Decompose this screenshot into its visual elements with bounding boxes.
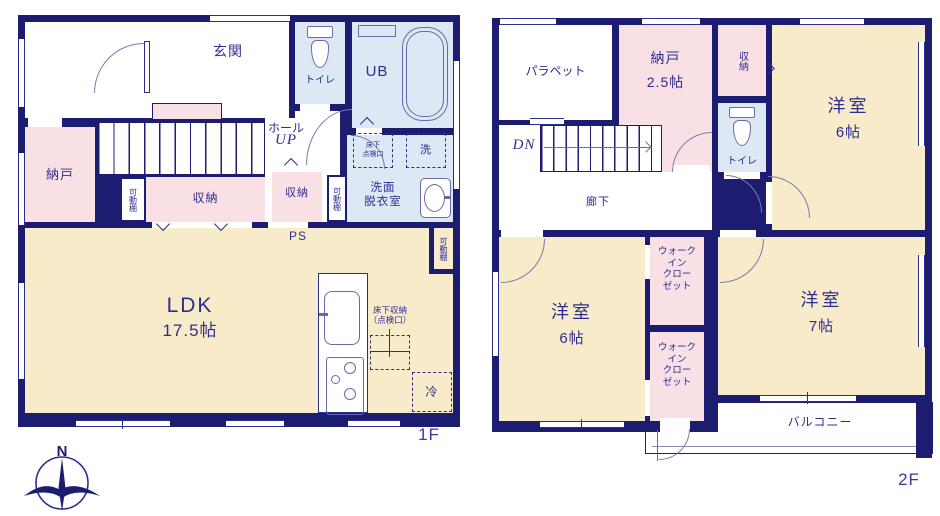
shelf-kadodana-3: 可動棚 [429,228,453,274]
youshitsu-sw-size-label: 6帖 [499,330,645,348]
washbasin-faucet-icon [444,196,451,199]
toilet-tank-icon [307,26,333,38]
window [800,18,864,25]
stairs-dn-line [544,147,652,148]
shoe-cabinet [152,103,222,120]
shelf-kadodana-2-label: 可動棚 [332,187,343,211]
stove-burner-icon [344,362,356,374]
ldk-size-label: 17.5帖 [90,321,290,342]
closet-2-label: 収納 [272,187,322,200]
compass-n-glyph: N [57,443,68,460]
stairs-dn-label: DN [506,136,542,154]
toilet-1f-label: トイレ [295,75,345,87]
closet-1-label: 収納 [146,191,265,206]
washroom-label: 洗面 脱衣室 [352,181,414,209]
stove-burner-icon [344,388,356,400]
underfloor-storage-label: 床下収納 （点検口） [348,305,432,326]
underfloor-access-label: 床下 点検口 [363,142,384,159]
wic-north-label: ウォーク イン クロー ゼット [650,246,704,292]
window-mullion [807,392,808,404]
door-gap-nando [28,118,62,127]
bathtub-inner-icon [406,31,444,117]
corridor-label: 廊下 [568,196,628,209]
fridge-box: 冷 [412,372,452,412]
compass-north-icon: N [20,438,104,514]
stove-burner-icon [331,375,340,384]
closet-2f-label: 収納 [735,51,750,71]
kitchen-faucet-icon [319,313,328,316]
window [348,420,400,427]
window [492,272,499,356]
fridge-label: 冷 [425,385,438,400]
stairs-up [97,122,265,175]
floor-plan-canvas: バルコニー UP 可動棚 可動棚 可動棚 [0,0,940,516]
youshitsu-e-label: 洋室 [718,290,925,312]
floor-tag-2f: 2F [886,470,932,491]
window [18,39,25,107]
door-arc-balcony [659,429,690,460]
shelf-kadodana-1: 可動棚 [120,177,146,222]
window-mullion [581,419,582,430]
plan-1f: UP 可動棚 可動棚 可動棚 [18,15,460,427]
genkan-label: 玄関 [168,43,288,60]
ldk-label: LDK [90,293,290,319]
compass-needle-icon [59,458,66,511]
window [210,15,290,22]
door-gap-sw-room [501,230,543,237]
balcony-inner-line [652,446,926,447]
plan-2f: DN パラペット 納戸 2.5帖 [492,18,932,432]
window-mullion [122,418,123,429]
shelf-kadodana-1-label: 可動棚 [128,188,139,212]
floor-tag-1f: 1F [406,425,452,446]
window [18,153,25,225]
door-gap-e-room [720,230,756,237]
window [500,18,556,25]
wic-south-label: ウォーク イン クロー ゼット [650,342,704,388]
window [453,61,460,127]
youshitsu-ne-size-label: 6帖 [772,124,925,142]
parapet-label: パラペット [499,64,612,79]
nando-2f-label: 納戸 [619,50,712,67]
youshitsu-ne-label: 洋室 [772,96,925,118]
nando-1f-label: 納戸 [25,167,95,183]
laundry-box: 洗 [406,133,446,168]
closet-2f-labelbox: 収納 [718,25,766,96]
window [226,420,284,427]
door-gap-hall-ldk [268,222,308,228]
door-gap-toilet [300,104,330,111]
underfloor-access-box: 床下 点検口 [353,133,393,168]
ub-label: UB [350,63,404,81]
youshitsu-sw-label: 洋室 [499,302,645,324]
underfloor-storage-cross-v [389,329,390,357]
compass: N [20,438,104,514]
window [530,118,564,125]
window [453,127,460,189]
shelf-kadodana-2: 可動棚 [327,175,347,222]
nando-2f-size-label: 2.5帖 [619,74,712,91]
laundry-label: 洗 [420,144,432,157]
entrance-door-leaf [144,41,150,93]
shelf-kadodana-3-label: 可動棚 [438,237,449,261]
toilet-2f-label: トイレ [718,156,766,168]
youshitsu-e-size-label: 7帖 [718,318,925,336]
window [18,283,25,379]
ps-label: PS [268,229,328,244]
toilet-tank-icon [729,107,755,118]
washbasin-bowl-icon [424,184,445,212]
window [642,18,700,25]
bath-counter-icon [358,25,396,37]
wall-balcony-pillar [916,398,932,458]
hall-label: ホール [243,121,329,136]
